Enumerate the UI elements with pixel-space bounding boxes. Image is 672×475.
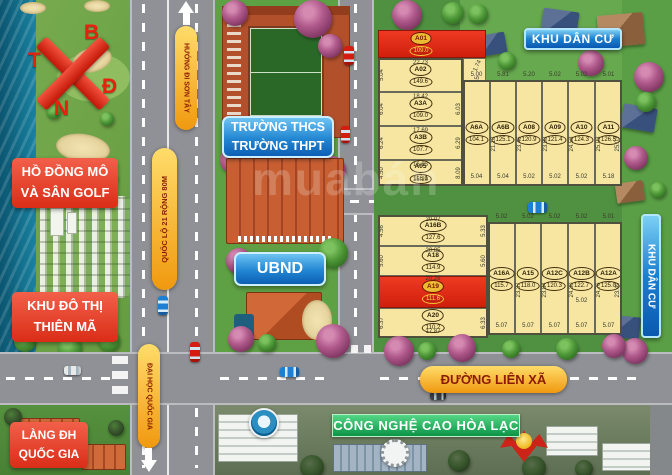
car-blue [528, 202, 547, 213]
label-lien-xa: ĐƯỜNG LIÊN XÃ [420, 366, 567, 393]
compass-north: B [84, 22, 99, 43]
tree-green [442, 2, 464, 24]
dim-top: 5.01 [603, 214, 615, 220]
tree-green [498, 52, 516, 70]
plot-id: A6A [465, 121, 488, 134]
dim-right: 8.09 [456, 165, 462, 181]
tree-purple [318, 34, 342, 58]
plot-id: A6B [491, 121, 514, 134]
dim-right: 6.33 [481, 315, 487, 331]
plot-area: 118.0 [517, 281, 540, 291]
dim-right: 6.03 [456, 101, 462, 117]
dim-right: 6.29 [456, 135, 462, 151]
label-line: KHU DÂN CƯ [532, 32, 614, 46]
crosswalk [112, 356, 128, 401]
plot-A09: 5.02 5.02 23.98 A09 121.4 [542, 80, 568, 186]
tree-purple [602, 334, 626, 358]
plot-A20: 6.37 6.33 17.87 A20 110.2 [378, 308, 488, 338]
sand-bunker [84, 0, 110, 12]
compass-west: T [28, 50, 41, 71]
tree-purple [316, 324, 350, 358]
tree-green [468, 4, 488, 24]
label-line: QUỐC LỘ 21 RỘNG 80M [160, 176, 169, 263]
tree-green [556, 338, 578, 360]
dim-bottom: 5.07 [549, 323, 561, 329]
plot-tag: A09 121.4 [543, 121, 566, 145]
plot-A12C: 5.02 5.07 23.84 A12C 120.3 [541, 222, 568, 335]
label-hoa-lac: CÔNG NGHỆ CAO HÒA LẠC [332, 414, 520, 437]
building-gray [333, 444, 427, 472]
dim-left: 6.04 [379, 101, 385, 117]
tree-green [502, 340, 520, 358]
label-lake-golf: HỒ ĐỒNG MÔ VÀ SÂN GOLF [12, 158, 118, 208]
plot-area: 122.7 [570, 281, 593, 291]
label-line: VÀ SÂN GOLF [12, 183, 118, 204]
plot-id: A20 [422, 309, 444, 322]
arrow-down-icon [141, 460, 157, 472]
label-line: KHU DÂN CƯ [646, 244, 657, 308]
dim-top: 5.20 [523, 72, 535, 78]
campus-building [82, 444, 126, 470]
ubnd-building [226, 158, 344, 244]
label-line: THIÊN MÃ [12, 317, 118, 338]
dim-bottom: 5.07 [603, 323, 615, 329]
label-line: HƯỚNG ĐI SƠN TÂY [183, 43, 190, 113]
plot-A19: 20.29 A19 111.6 [378, 276, 488, 308]
dim-top: 5.02 [522, 214, 534, 220]
circle-logo-icon [249, 408, 279, 438]
dim-left: 4.56 [379, 223, 385, 239]
dim-right: 5.60 [481, 253, 487, 269]
plot-tag: A3B 107.7 [409, 131, 432, 155]
label-ql21: QUỐC LỘ 21 RỘNG 80M [152, 148, 177, 290]
plot-tag: A12B 122.7 [568, 267, 595, 291]
sports-field [250, 28, 322, 116]
label-thien-ma: KHU ĐÔ THỊ THIÊN MÃ [12, 292, 118, 342]
tree-purple [294, 0, 332, 38]
label-line: TRƯỜNG THCS [224, 118, 332, 137]
plot-id: A3B [409, 131, 432, 144]
plot-tag: A16A 115.7 [488, 267, 515, 291]
label-school: TRƯỜNG THCS TRƯỜNG THPT [222, 116, 334, 158]
dim-bottom: 5.18 [603, 174, 615, 180]
plot-area: 110.2 [422, 323, 445, 333]
label-dai-hoc: ĐẠI HỌC QUỐC GIA [138, 344, 160, 448]
label-kdc-right: KHU DÂN CƯ [641, 214, 661, 338]
plot-A11: 5.01 5.18 25.03 25.03 A11 126.5 [595, 80, 622, 186]
sand-bunker [20, 2, 46, 14]
tree-purple [228, 326, 254, 352]
tree-purple [384, 336, 414, 366]
building-white [546, 426, 598, 456]
plot-area: 120.3 [543, 281, 566, 291]
dim-bottom: 5.02 [549, 174, 561, 180]
plot-area: 149.6 [409, 77, 432, 87]
tree-green [100, 112, 114, 126]
dim-top: 5.02 [576, 72, 588, 78]
plot-id: A05 [410, 160, 432, 173]
dim-top: 5.02 [549, 214, 561, 220]
plot-id: A16A [488, 267, 515, 280]
lane-line [142, 4, 145, 344]
tree-green [258, 334, 276, 352]
tree-purple [624, 146, 648, 170]
dim-left: 6.37 [379, 315, 385, 331]
dim-top: 5.01 [603, 72, 615, 78]
plot-tag: A3A 109.0 [409, 97, 432, 121]
dim-bottom: 5.04 [471, 174, 483, 180]
plot-area: 116.1 [409, 174, 432, 184]
plot-A6A: 5.00 5.04 A6A 104.1 [463, 80, 490, 186]
car-red [341, 126, 350, 143]
lane-line [6, 377, 116, 380]
dim-left: 5.04 [379, 67, 385, 83]
dim-left: 5.60 [379, 253, 385, 269]
lane-line [354, 4, 357, 340]
plot-A18: 20.85 5.60 5.60 A18 114.9 [378, 246, 488, 276]
tree-purple [634, 62, 664, 92]
plot-A10: 5.02 5.02 24.58 A10 124.3 [568, 80, 595, 186]
plot-A01: A01 109.0 [378, 30, 486, 58]
dim-right: 5.33 [481, 223, 487, 239]
land-plot-map: B T Đ N [0, 0, 672, 475]
dim-bottom: 5.02 [523, 174, 535, 180]
plot-A15: 5.02 5.07 23.37 A15 118.0 [515, 222, 541, 335]
plot-area: 109.0 [409, 111, 432, 121]
plot-id: A12A [595, 267, 622, 280]
tree-dark [448, 450, 470, 472]
plot-area: 124.3 [570, 135, 593, 145]
plot-area: 109.0 [409, 46, 432, 56]
label-line: TRƯỜNG THPT [224, 137, 332, 156]
lane-line [195, 408, 198, 468]
car-blue [158, 296, 168, 315]
arrow-up-icon [178, 1, 194, 13]
plot-id: A12C [541, 267, 568, 280]
plot-area: 114.9 [422, 263, 445, 273]
dim-left: 4.50 [379, 165, 385, 181]
plot-tag: A15 118.0 [517, 267, 540, 291]
dim-top: 5.02 [496, 214, 508, 220]
dim-top: 5.02 [549, 72, 561, 78]
plot-tag: A10 124.3 [570, 121, 593, 145]
arrow-down-stem [145, 448, 152, 460]
dim-top: 5.00 [471, 72, 483, 78]
plot-A05: 16.83 4.50 8.09 15.20 A05 116.1 [378, 160, 463, 186]
gear-logo-icon [381, 439, 409, 467]
plot-tag: A6A 104.1 [465, 121, 488, 145]
tree-purple [448, 334, 476, 362]
plot-area: 120.9 [517, 135, 540, 145]
plot-tag: A01 109.0 [409, 32, 432, 56]
tree-dark [108, 420, 124, 436]
plot-id: A12B [568, 267, 595, 280]
plot-id: A10 [571, 121, 593, 134]
plot-id: A09 [544, 121, 566, 134]
plot-A16A: 5.02 5.07 A16A 115.7 [488, 222, 515, 335]
plot-tag: A19 111.6 [422, 280, 444, 304]
tree-dark [575, 460, 593, 475]
label-line: HỒ ĐỒNG MÔ [12, 162, 118, 183]
plot-area: 126.5 [597, 135, 620, 145]
plot-id: A19 [422, 280, 444, 293]
label-line: KHU ĐÔ THỊ [12, 296, 118, 317]
plot-A6B: 5.81 5.04 21.18 A6B 125.1 [490, 80, 516, 186]
plot-tag: A08 120.9 [517, 121, 540, 145]
compass-south: N [54, 98, 69, 119]
label-ubnd: UBND [234, 252, 326, 286]
plot-A16B: 20.07 4.56 5.33 A16B 127.6 [378, 215, 488, 246]
dim-extra: 1.74 [473, 59, 483, 72]
label-lang-dh: LÀNG ĐH QUỐC GIA [10, 422, 88, 468]
label-line: ĐƯỜNG LIÊN XÃ [441, 372, 547, 387]
plot-area: 111.6 [422, 294, 444, 304]
plot-id: A18 [422, 249, 444, 262]
dim-bottom: 5.02 [576, 174, 588, 180]
label-kdc-top: KHU DÂN CƯ [524, 28, 622, 50]
tree-dark [300, 455, 324, 475]
plot-tag: A20 110.2 [422, 309, 445, 333]
plot-tag: A16B 127.6 [420, 219, 447, 243]
fence [238, 236, 332, 242]
tree-green [650, 182, 666, 198]
plot-tag: A05 116.1 [409, 160, 432, 184]
car-white [64, 366, 81, 375]
plot-area: 125.0 [597, 281, 620, 291]
tree-green [636, 92, 656, 112]
lane-line [220, 377, 332, 380]
plot-area: 107.7 [409, 145, 432, 155]
dim-top: 5.02 [576, 214, 588, 220]
tower-building [67, 212, 77, 234]
plot-area: 121.4 [543, 135, 566, 145]
plot-tag: A6B 125.1 [491, 121, 514, 145]
tree-purple [222, 0, 248, 26]
tree-purple [622, 338, 648, 364]
plot-id: A15 [517, 267, 539, 280]
plot-A02: 22.73 5.04 A02 149.6 [378, 58, 463, 92]
car-red [190, 342, 200, 362]
plot-id: A02 [410, 63, 432, 76]
plot-area: 104.1 [465, 135, 488, 145]
dim-bottom: 5.07 [576, 323, 588, 329]
label-line: ĐẠI HỌC QUỐC GIA [146, 363, 153, 430]
car-red [344, 46, 354, 65]
plot-A08: 5.20 5.02 23.46 A08 120.9 [516, 80, 542, 186]
plot-area: 127.6 [421, 233, 444, 243]
lane-line [167, 405, 169, 475]
plot-id: A01 [410, 32, 432, 45]
plot-tag: A11 126.5 [597, 121, 620, 145]
plot-tag: A12A 125.0 [595, 267, 622, 291]
plot-A12B: 5.02 5.07 24.30 5.02 A12B 122.7 [568, 222, 595, 335]
plot-A12A: 5.01 5.07 24.76 23.49 A12A 125.0 [595, 222, 622, 335]
plot-area: 115.7 [490, 281, 513, 291]
dim-extra: 5.02 [576, 298, 588, 304]
tree-green [418, 342, 436, 360]
dim-bottom: 5.07 [496, 323, 508, 329]
plot-id: A08 [518, 121, 540, 134]
dim-bottom: 5.07 [522, 323, 534, 329]
tree-purple [392, 0, 422, 30]
photo-road [650, 405, 672, 475]
label-son-tay: HƯỚNG ĐI SƠN TÂY [175, 26, 197, 130]
plot-tag: A02 149.6 [409, 63, 432, 87]
dim-left: 6.24 [379, 135, 385, 151]
plot-id: A11 [598, 121, 620, 134]
label-line: UBND [236, 257, 324, 281]
compass-east: Đ [102, 76, 117, 97]
label-line: CÔNG NGHỆ CAO HÒA LẠC [333, 418, 519, 433]
label-line: QUỐC GIA [10, 445, 88, 464]
arrow-up-stem [183, 13, 190, 25]
plot-id: A16B [420, 219, 447, 232]
tower-building [50, 208, 64, 236]
car-blue [280, 367, 299, 377]
dim-top: 5.81 [497, 72, 509, 78]
dim-bottom: 5.04 [497, 174, 509, 180]
plot-A3B: 17.69 6.24 6.29 A3B 107.7 [378, 126, 463, 160]
plot-id: A3A [409, 97, 432, 110]
plot-tag: A18 114.9 [422, 249, 445, 273]
label-line: LÀNG ĐH [10, 426, 88, 445]
plot-tag: A12C 120.3 [541, 267, 568, 291]
plot-A3A: 18.42 6.04 6.03 A3A 109.0 [378, 92, 463, 126]
plot-area: 125.1 [491, 135, 514, 145]
school-windows [227, 16, 241, 128]
